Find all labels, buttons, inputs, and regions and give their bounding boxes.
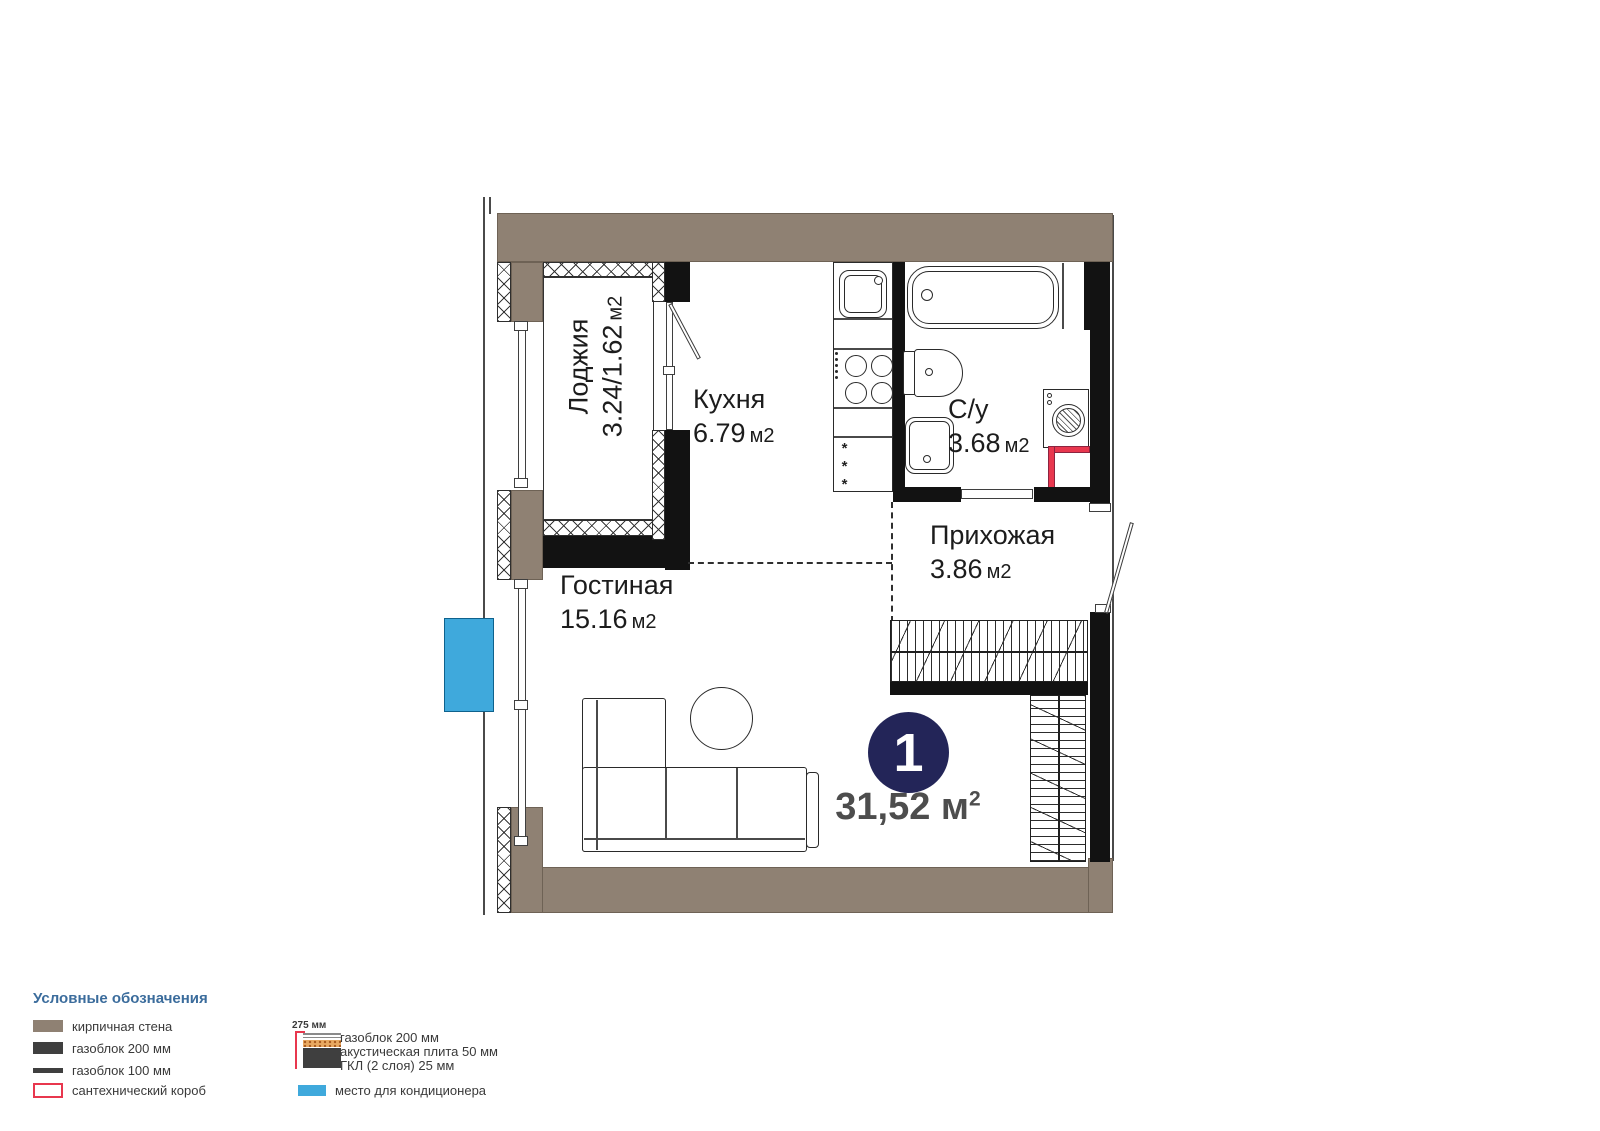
pier-bottom-hatch: [497, 807, 511, 913]
wardrobe-hallway: [890, 620, 1088, 682]
wardrobe-entry: [1030, 695, 1086, 862]
counter-divider-3: [834, 407, 892, 409]
hallway-area-unit: м2: [987, 561, 1012, 583]
loggia-name: Лоджия: [562, 247, 596, 487]
building-outline-right: [1112, 215, 1114, 861]
ac-place-swatch: [298, 1085, 326, 1096]
kitchen-area-unit: м2: [750, 425, 775, 447]
bathroom-door-threshold: [961, 489, 1033, 499]
window-loggia: [518, 324, 526, 486]
stove-burner-2: [871, 355, 893, 377]
legend-row-brick: кирпичная стена: [33, 1018, 172, 1034]
legend-ac-label: место для кондиционера: [335, 1083, 486, 1098]
stove-knob-3: [835, 364, 838, 367]
pier-middle-brick: [511, 490, 543, 580]
zone-dashed-horizontal: [688, 562, 892, 564]
bathtub-drain: [921, 289, 933, 301]
gasblock-layer: [303, 1048, 341, 1068]
layered-dim-line-v: [295, 1031, 297, 1069]
round-table: [690, 687, 753, 750]
total-area-unit: м: [941, 786, 969, 828]
plumbing-box-swatch: [33, 1083, 63, 1098]
gkl-layer-line-1: [303, 1033, 341, 1035]
bathroom-wall-bottom-right: [1034, 487, 1090, 502]
stove-knob-2: [835, 358, 838, 361]
layered-dimension-label: 275 мм: [292, 1020, 326, 1031]
legend-gas200-label: газоблок 200 мм: [72, 1041, 171, 1056]
partition-black-top: [665, 262, 690, 302]
plumbing-box-left-bar: [1048, 446, 1055, 493]
legend-row-gas200: газоблок 200 мм: [33, 1040, 171, 1056]
fridge-marks: ***: [836, 440, 853, 494]
bathtub-end-line: [1062, 263, 1064, 329]
washing-machine-knob-2: [1047, 400, 1052, 405]
total-area-sup: 2: [969, 787, 981, 810]
living-name: Гостиная: [560, 568, 673, 602]
sofa-seat-divider-1: [665, 768, 667, 838]
layered-label-2: акустическая плита 50 мм: [340, 1045, 498, 1059]
toilet-bowl: [914, 349, 963, 397]
window-living: [518, 582, 526, 844]
bathroom-name: С/у: [948, 392, 1029, 426]
total-area: 31,52 м2: [800, 786, 1016, 829]
legend-title: Условные обозначения: [33, 990, 208, 1007]
wall-right-top: [1090, 262, 1110, 510]
layered-labels: газоблок 200 мм акустическая плита 50 мм…: [340, 1031, 498, 1073]
bathroom-area-unit: м2: [1005, 435, 1030, 457]
stove-knob-4: [835, 370, 838, 373]
room-count-badge: 1: [868, 712, 949, 793]
sofa-front-line: [584, 838, 805, 840]
living-area-unit: м2: [632, 611, 657, 633]
room-label-hallway: Прихожая 3.86м2: [930, 518, 1055, 591]
window-living-cap-bottom: [514, 836, 528, 846]
entry-door-leaf: [1104, 522, 1134, 613]
legend-plumbing-label: сантехнический короб: [72, 1083, 206, 1098]
kitchen-area-value: 6.79: [693, 418, 746, 448]
wall-bottom-brick: [500, 867, 1092, 913]
stove-burner-1: [845, 355, 867, 377]
legend-gas100-label: газоблок 100 мм: [72, 1063, 171, 1078]
building-outline-left-tick: [489, 197, 491, 214]
room-count: 1: [893, 722, 923, 784]
room-label-bathroom: С/у 3.68м2: [948, 392, 1029, 465]
legend-row-plumbing: сантехнический короб: [33, 1082, 206, 1098]
bathroom-sink: [905, 417, 954, 474]
pier-bottom-brick: [511, 807, 543, 913]
sofa-back-line: [596, 700, 598, 850]
acoustic-layer: [303, 1040, 341, 1047]
washing-machine-knob-1: [1047, 393, 1052, 398]
stove-knob-1: [835, 352, 838, 355]
counter-divider-4: [834, 436, 892, 438]
wall-right-bottom: [1090, 612, 1110, 862]
counter-divider-2: [834, 348, 892, 350]
loggia-area-unit: м2: [605, 296, 627, 321]
window-loggia-cap-top: [514, 321, 528, 331]
window-loggia-cap-bottom: [514, 478, 528, 488]
stove-burner-4: [871, 382, 893, 404]
sofa-seat-divider-2: [736, 768, 738, 838]
balcony-door-glazing-cap: [663, 366, 675, 375]
gasblock-100-swatch: [33, 1068, 63, 1073]
partition-black-bottom: [665, 430, 690, 570]
washing-machine-drum: [1052, 404, 1085, 437]
entry-door-frame-top: [1089, 503, 1111, 512]
window-living-cap-top: [514, 579, 528, 589]
gasblock-200-swatch: [33, 1042, 63, 1054]
room-label-living: Гостиная 15.16м2: [560, 568, 673, 641]
layered-label-3: ГКЛ (2 слоя) 25 мм: [340, 1059, 498, 1073]
hallway-name: Прихожая: [930, 518, 1055, 552]
partition-hatch-bottom: [652, 430, 665, 540]
stove-burner-3: [845, 382, 867, 404]
window-living-cap-middle: [514, 700, 528, 710]
bathroom-wall-bottom-left: [893, 487, 961, 502]
pier-middle-hatch: [497, 490, 511, 580]
zone-dashed-vertical: [891, 502, 893, 622]
brick-wall-swatch: [33, 1020, 63, 1032]
partition-hatch-top: [652, 262, 665, 302]
loggia-wall-bottom-hatch: [543, 520, 655, 536]
layered-wall-swatch: [303, 1033, 341, 1068]
balcony-door-leaf: [668, 303, 701, 360]
building-outline-left: [483, 197, 485, 915]
living-area-value: 15.16: [560, 604, 628, 634]
room-label-kitchen: Кухня 6.79м2: [693, 382, 774, 455]
kitchen-name: Кухня: [693, 382, 774, 416]
bathroom-sink-drain: [923, 455, 931, 463]
gkl-layer-line-2: [303, 1037, 341, 1039]
pier-top-hatch: [497, 262, 511, 322]
ac-unit-place: [444, 618, 494, 712]
counter-divider-1: [834, 318, 892, 320]
legend-row-ac: место для кондиционера: [298, 1082, 486, 1098]
toilet-dot: [925, 368, 933, 376]
legend-row-gas100: газоблок 100 мм: [33, 1062, 171, 1078]
layered-label-1: газоблок 200 мм: [340, 1031, 498, 1045]
total-area-value: 31,52: [835, 786, 930, 828]
wardrobe-hallway-wall: [890, 682, 1088, 695]
loggia-area-value: 3.24/1.62: [598, 325, 628, 438]
floor-plan-canvas: Лоджия 3.24/1.62м2 ***: [0, 0, 1600, 1131]
kitchen-sink-tap: [874, 276, 883, 285]
pier-top-brick: [511, 262, 543, 322]
hallway-area-value: 3.86: [930, 554, 983, 584]
room-label-loggia: Лоджия 3.24/1.62м2: [562, 247, 635, 487]
stove-knob-5: [835, 376, 838, 379]
wall-corner-bottom-right-brick: [1088, 858, 1113, 913]
legend-brick-label: кирпичная стена: [72, 1019, 172, 1034]
bathroom-area-value: 3.68: [948, 428, 1001, 458]
